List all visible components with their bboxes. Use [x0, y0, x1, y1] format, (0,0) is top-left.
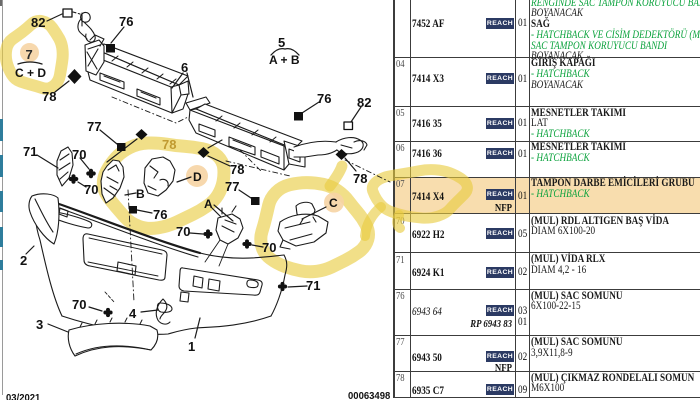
svg-text:76: 76: [119, 14, 133, 29]
svg-text:78: 78: [42, 89, 56, 104]
svg-text:4: 4: [129, 306, 137, 321]
svg-text:D: D: [193, 170, 202, 184]
svg-text:78: 78: [230, 162, 244, 177]
svg-text:82: 82: [31, 15, 45, 30]
svg-text:5: 5: [278, 35, 285, 50]
svg-text:A: A: [204, 197, 213, 211]
svg-text:A + B: A + B: [269, 53, 300, 67]
svg-text:C: C: [329, 196, 338, 210]
svg-text:76: 76: [153, 207, 167, 222]
svg-text:B: B: [136, 187, 145, 201]
svg-text:71: 71: [23, 144, 37, 159]
svg-text:70: 70: [84, 182, 98, 197]
svg-text:70: 70: [72, 147, 86, 162]
svg-text:78: 78: [162, 137, 176, 152]
svg-text:77: 77: [225, 179, 239, 194]
svg-text:C + D: C + D: [15, 66, 46, 80]
svg-text:6: 6: [181, 60, 188, 75]
svg-text:70: 70: [176, 224, 190, 239]
svg-text:3: 3: [36, 317, 43, 332]
svg-text:71: 71: [306, 278, 320, 293]
svg-text:7: 7: [26, 47, 33, 62]
svg-text:70: 70: [262, 240, 276, 255]
svg-text:78: 78: [353, 171, 367, 186]
svg-text:2: 2: [20, 253, 27, 268]
svg-text:82: 82: [357, 95, 371, 110]
svg-text:76: 76: [317, 91, 331, 106]
svg-text:77: 77: [87, 119, 101, 134]
svg-text:70: 70: [72, 297, 86, 312]
svg-text:1: 1: [188, 339, 195, 354]
